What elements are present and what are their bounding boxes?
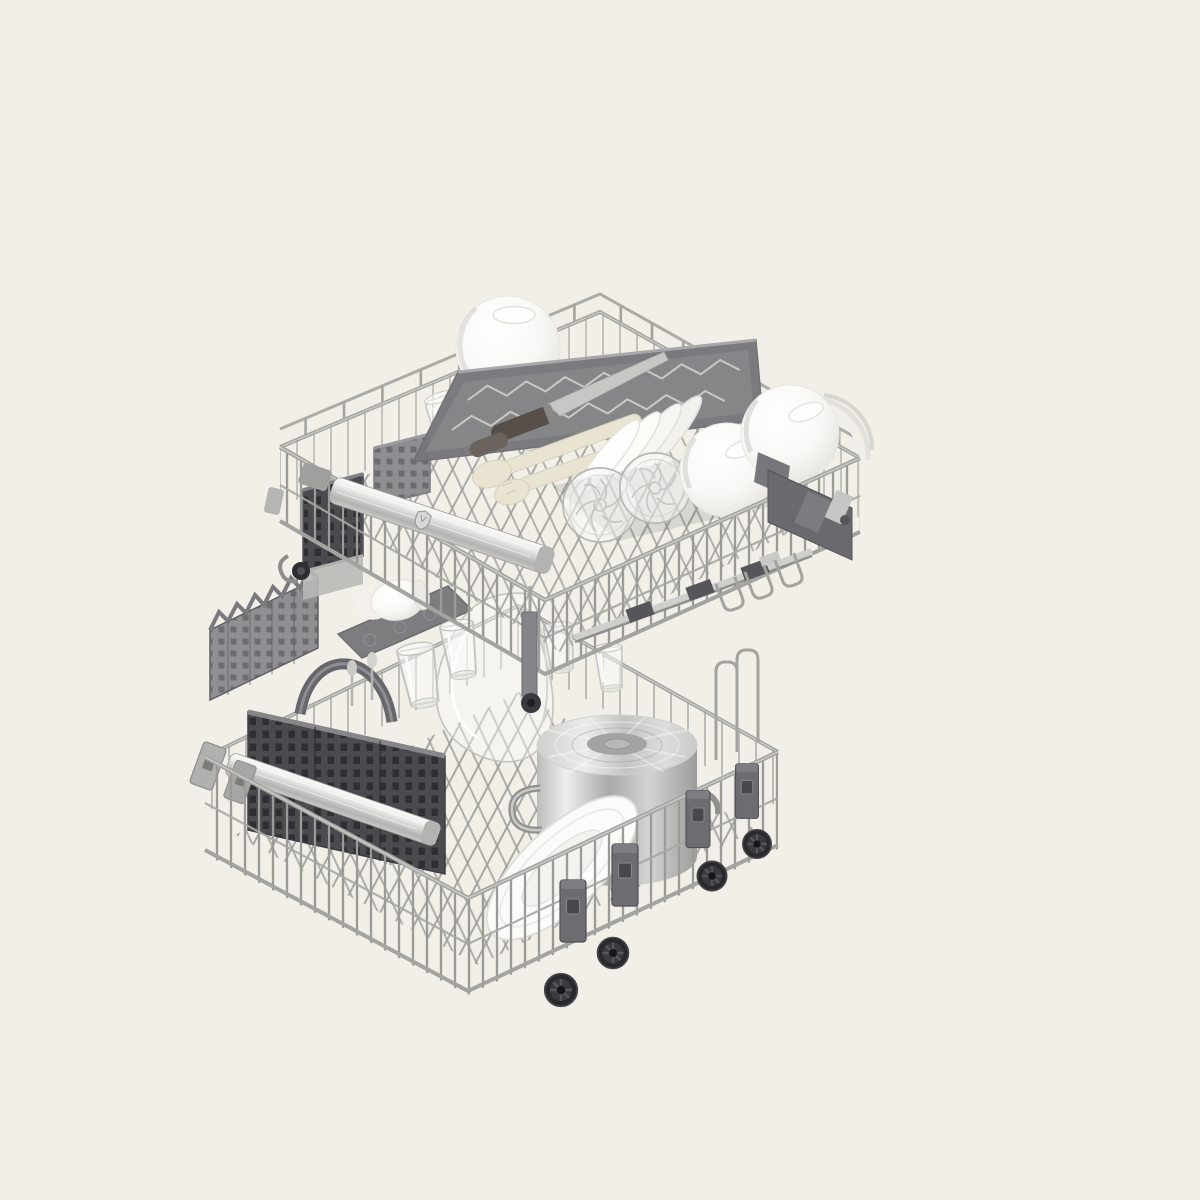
roller-wheel [742,829,771,858]
mounting-tab [686,791,710,848]
dishwasher-racks-illustration [0,0,1200,1200]
roller-wheel [697,861,727,891]
roller-wheel [597,937,629,969]
mounting-tab [560,880,586,942]
crystal-dessert-bowl [620,453,690,523]
product-image-canvas [0,0,1200,1200]
roller-wheel [544,973,578,1007]
white-bowl-right-2 [741,385,839,483]
mounting-tab [612,844,638,906]
mounting-tab [736,764,759,819]
